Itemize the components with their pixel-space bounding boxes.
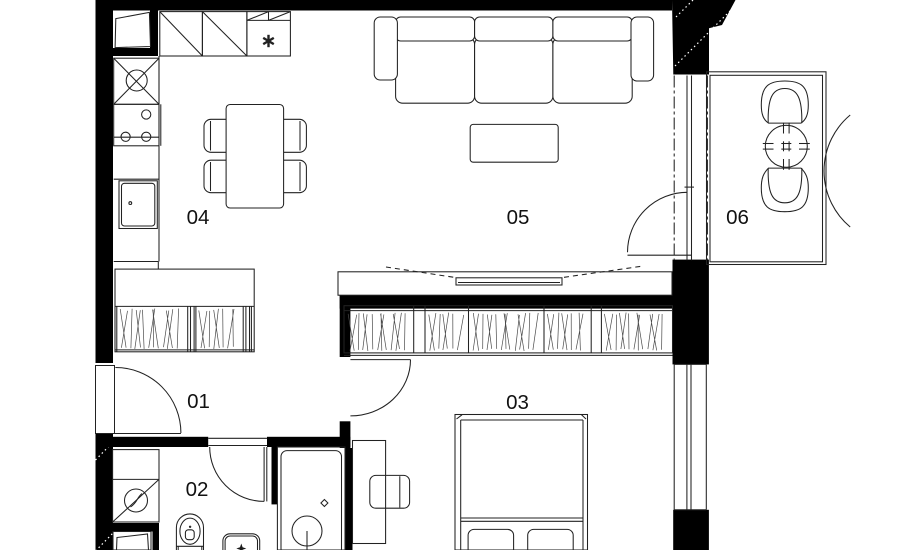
svg-text:03: 03 [506,391,529,414]
svg-text:01: 01 [187,390,210,413]
svg-text:06: 06 [726,206,749,229]
svg-text:04: 04 [187,206,210,229]
svg-text:05: 05 [507,206,530,229]
svg-text:02: 02 [186,478,209,501]
